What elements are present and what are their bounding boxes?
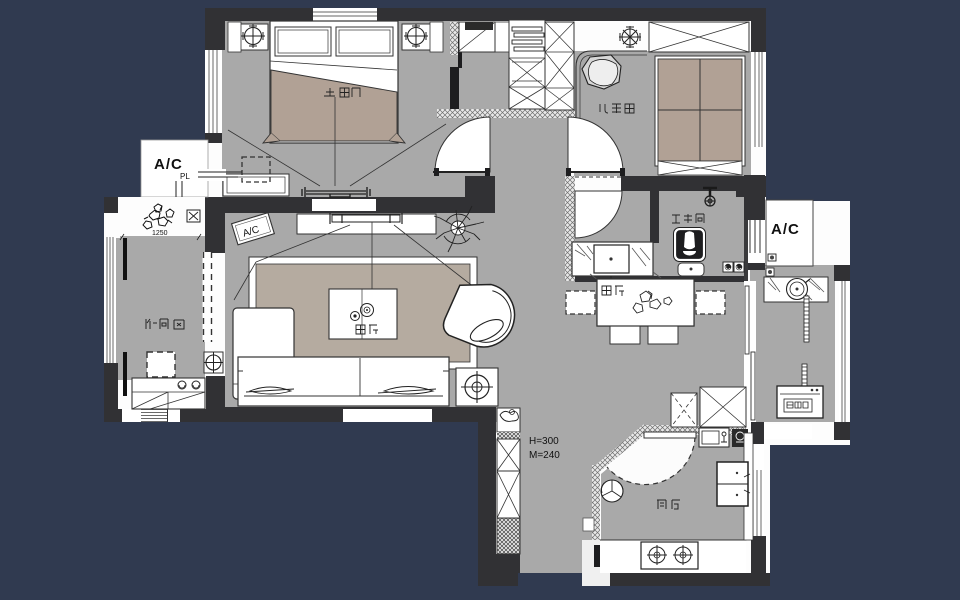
svg-text:A/C: A/C [154,156,183,173]
svg-text:M=240: M=240 [529,450,560,461]
svg-text:A/C: A/C [771,221,800,238]
svg-text:H=300: H=300 [529,436,559,447]
svg-text:PL: PL [180,172,190,181]
svg-text:1250: 1250 [152,230,168,237]
